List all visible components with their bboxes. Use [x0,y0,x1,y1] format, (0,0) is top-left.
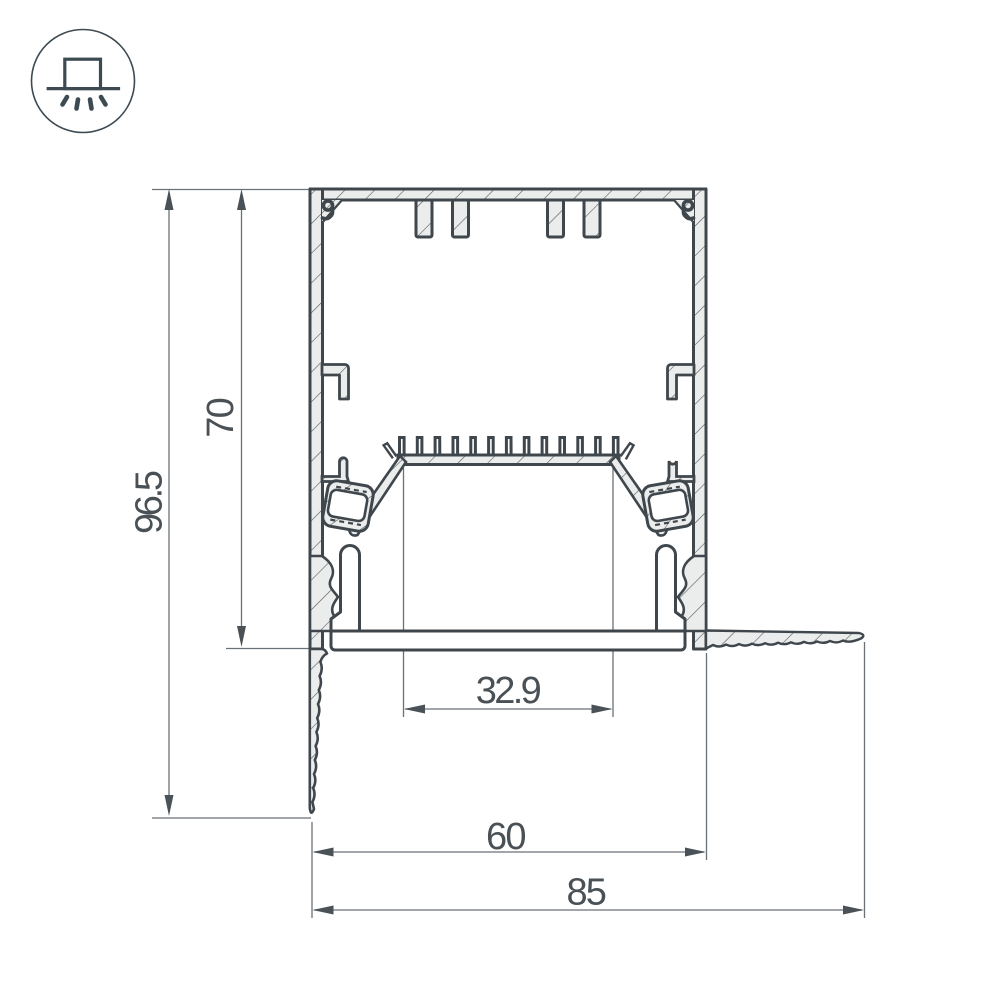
svg-text:85: 85 [566,872,607,914]
svg-text:70: 70 [200,397,242,438]
svg-text:96.5: 96.5 [129,470,171,534]
svg-text:32.9: 32.9 [476,670,542,712]
svg-text:60: 60 [486,816,527,858]
